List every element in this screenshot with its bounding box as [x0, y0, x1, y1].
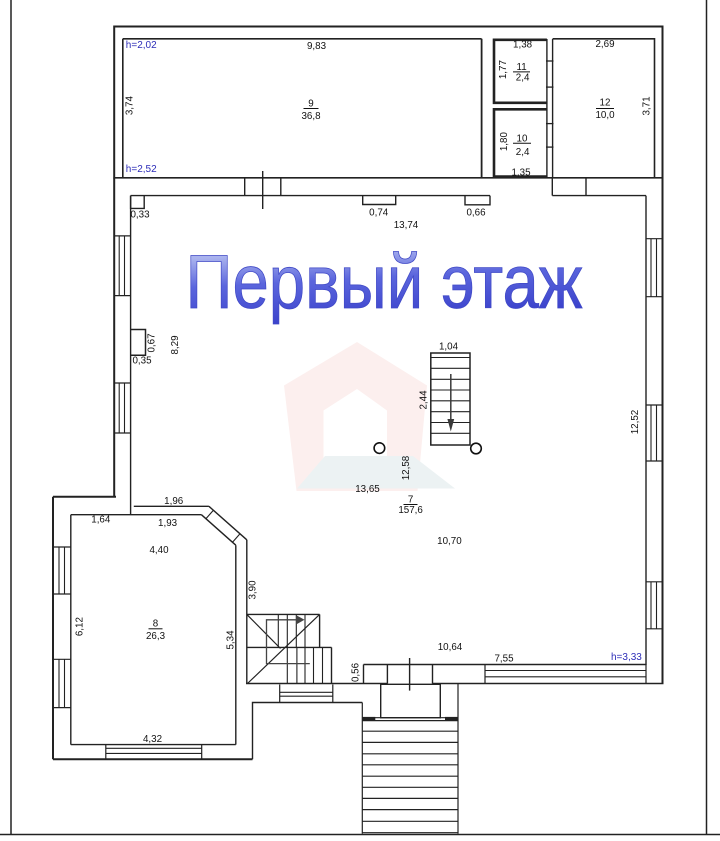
- svg-text:0,74: 0,74: [369, 208, 389, 219]
- svg-text:0,35: 0,35: [132, 355, 152, 366]
- svg-text:1,96: 1,96: [164, 496, 184, 507]
- svg-text:h=2,52: h=2,52: [126, 164, 157, 175]
- svg-text:12: 12: [600, 98, 611, 109]
- svg-text:36,8: 36,8: [301, 111, 321, 122]
- svg-text:2,4: 2,4: [516, 73, 530, 84]
- svg-text:0,56: 0,56: [351, 662, 362, 682]
- svg-text:1,80: 1,80: [499, 132, 510, 152]
- svg-text:1,38: 1,38: [513, 40, 533, 51]
- svg-text:10,0: 10,0: [595, 110, 615, 121]
- svg-text:7,55: 7,55: [494, 654, 514, 665]
- svg-text:7: 7: [408, 495, 413, 506]
- svg-text:26,3: 26,3: [146, 631, 166, 642]
- svg-text:0,66: 0,66: [466, 208, 486, 219]
- svg-text:6,12: 6,12: [75, 617, 86, 636]
- svg-text:10,70: 10,70: [437, 536, 462, 547]
- svg-text:3,71: 3,71: [642, 96, 653, 115]
- svg-text:1,93: 1,93: [158, 518, 178, 529]
- svg-text:13,65: 13,65: [355, 484, 380, 495]
- svg-text:h=2,02: h=2,02: [126, 40, 157, 51]
- svg-text:0,67: 0,67: [147, 333, 158, 352]
- svg-text:Первый этаж: Первый этаж: [186, 240, 583, 325]
- svg-text:12,52: 12,52: [630, 410, 641, 435]
- svg-text:4,32: 4,32: [143, 734, 162, 745]
- svg-text:2,4: 2,4: [516, 147, 530, 158]
- svg-text:1,77: 1,77: [498, 60, 509, 79]
- svg-text:9,83: 9,83: [307, 41, 327, 52]
- svg-text:2,44: 2,44: [419, 390, 430, 410]
- svg-text:3,74: 3,74: [124, 96, 135, 116]
- svg-text:157,6: 157,6: [398, 505, 423, 516]
- svg-text:1,04: 1,04: [439, 341, 459, 352]
- svg-text:8,29: 8,29: [170, 335, 181, 354]
- svg-text:11: 11: [517, 62, 527, 73]
- svg-text:13,74: 13,74: [394, 220, 419, 231]
- svg-text:4,40: 4,40: [149, 545, 169, 556]
- svg-text:12,58: 12,58: [401, 455, 412, 480]
- svg-text:2,69: 2,69: [595, 39, 614, 50]
- svg-text:h=3,33: h=3,33: [611, 652, 642, 663]
- svg-text:5,34: 5,34: [226, 630, 237, 650]
- svg-text:8: 8: [153, 619, 159, 630]
- svg-text:1,64: 1,64: [91, 515, 111, 526]
- svg-text:0,33: 0,33: [130, 210, 150, 221]
- svg-text:1,35: 1,35: [511, 168, 531, 179]
- svg-text:9: 9: [308, 99, 313, 110]
- svg-text:3,90: 3,90: [247, 580, 258, 600]
- svg-text:10,64: 10,64: [438, 642, 463, 653]
